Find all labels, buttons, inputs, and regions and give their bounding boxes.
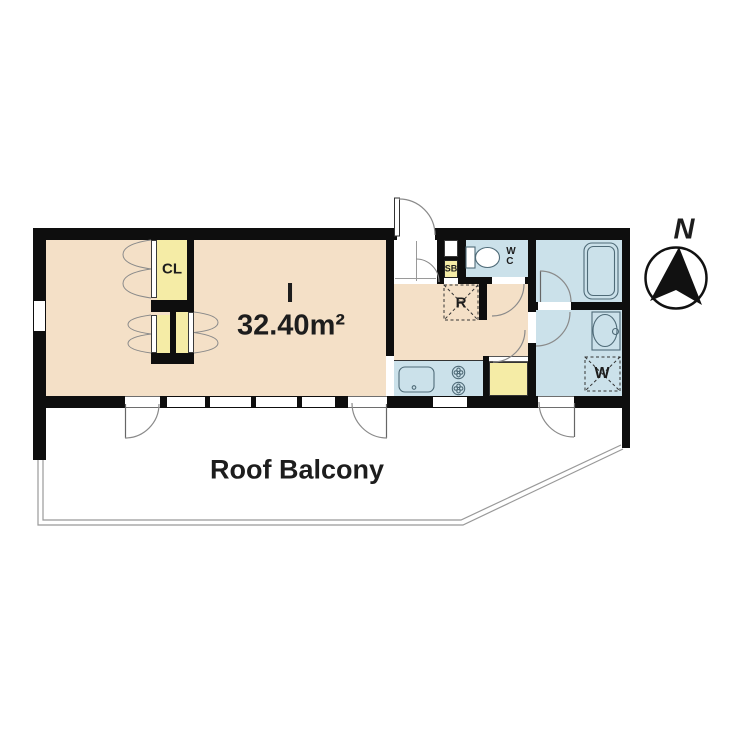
wall-left-upper <box>33 228 46 301</box>
closet-lower-b <box>176 312 188 353</box>
unit-type-label: I <box>286 279 294 307</box>
entry-vestibule <box>394 240 437 284</box>
wall-bath-wash-divider <box>571 302 622 310</box>
balcony-door-opening-3 <box>538 396 574 408</box>
toilet-room <box>466 240 528 277</box>
wall-right <box>622 240 630 448</box>
balcony-door-2-arc <box>352 403 387 438</box>
washer-label: W <box>594 366 609 382</box>
wall-bottom-5 <box>467 396 538 408</box>
kitchen-counter <box>394 360 483 396</box>
compass-label: N <box>674 216 695 245</box>
entrance-opening <box>397 228 435 240</box>
wall-bottom-3 <box>335 396 348 408</box>
unit-area-label: 32.40m² <box>237 312 345 341</box>
balcony-door-opening-2 <box>348 396 387 408</box>
window-left-wall <box>33 301 46 331</box>
storage-box <box>489 362 528 396</box>
balcony-label: Roof Balcony <box>210 457 384 484</box>
closet-lower-right-panel <box>188 312 194 353</box>
toilet-label-line2: C <box>506 257 515 267</box>
closet-bottom-band <box>151 353 194 364</box>
window-south-2 <box>433 396 467 408</box>
closet-label: CL <box>162 262 182 277</box>
kitchen-passage-opening <box>386 356 394 396</box>
washroom-door-opening <box>528 312 536 343</box>
wall-wet-upper <box>528 240 536 312</box>
wall-wc-bottom-left <box>458 277 492 284</box>
compass-needle <box>650 247 702 305</box>
compass <box>646 247 707 309</box>
wall-bottom-2 <box>160 396 167 408</box>
compass-circle <box>646 248 707 309</box>
closet-lower-a <box>157 315 170 353</box>
wall-bottom-6 <box>574 396 630 408</box>
wall-bottom-1 <box>33 396 125 408</box>
window-mullion-2 <box>251 396 256 408</box>
balcony-door-opening-1 <box>125 396 160 408</box>
wall-bottom-4 <box>387 396 433 408</box>
window-mullion-3 <box>297 396 302 408</box>
wall-entry-right <box>437 235 444 284</box>
wall-corridor-left <box>386 240 394 356</box>
bathroom <box>536 240 622 302</box>
balcony-door-1-arc <box>125 404 159 438</box>
shoe-box-label: SB <box>445 265 458 274</box>
wc-door-opening <box>492 277 525 284</box>
wall-fridge-stub <box>479 284 487 320</box>
window-mullion-1 <box>205 396 210 408</box>
closet-mid-band <box>151 300 194 312</box>
wall-wet-lower <box>528 343 536 396</box>
wall-top-left <box>33 228 397 240</box>
refrigerator-label: R <box>456 296 467 311</box>
floor-plan: I 32.40m² CL SB W C R W Roof Balcony N <box>0 0 734 734</box>
bath-door-opening <box>538 302 571 310</box>
toilet-label: W C <box>506 247 515 267</box>
entry-cabinet <box>444 240 458 257</box>
wall-counter-right <box>483 356 489 396</box>
closet-door-panel <box>151 240 157 298</box>
washroom <box>536 310 622 396</box>
